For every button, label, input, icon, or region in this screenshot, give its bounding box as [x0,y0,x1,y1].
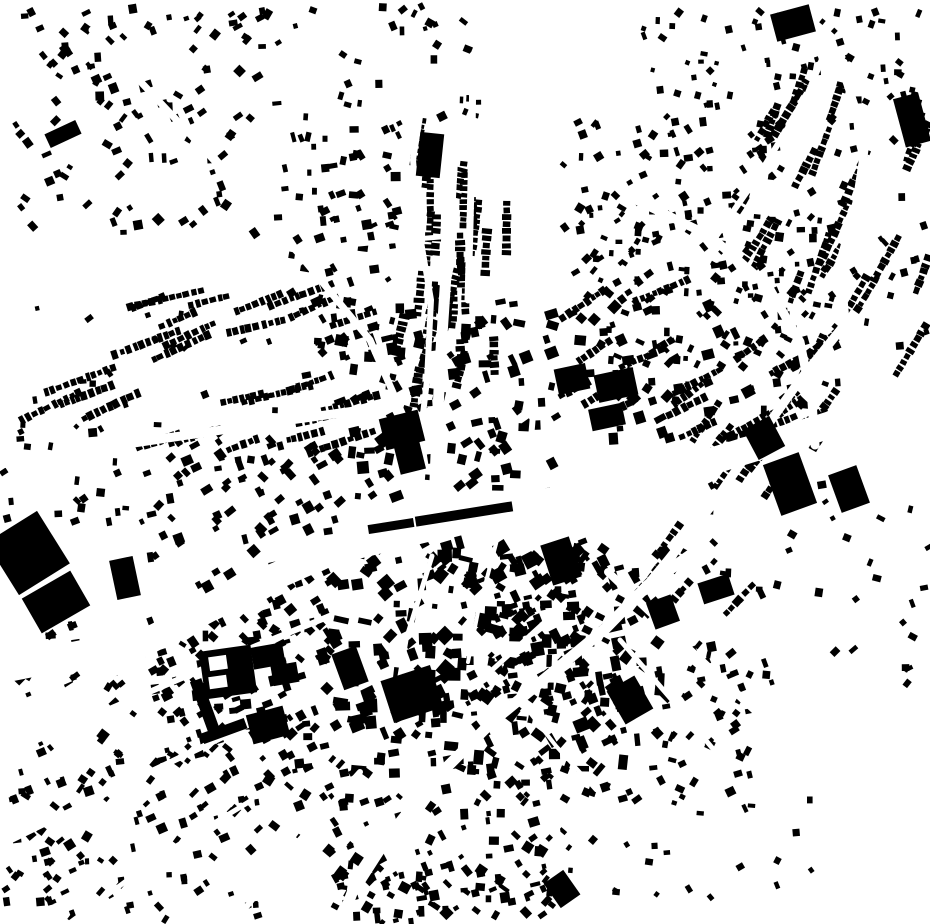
landmark-courtyard-school [199,645,257,700]
city-map-canvas [0,0,930,924]
figure-ground-map [0,0,930,924]
landmark-north-bar [416,132,444,178]
